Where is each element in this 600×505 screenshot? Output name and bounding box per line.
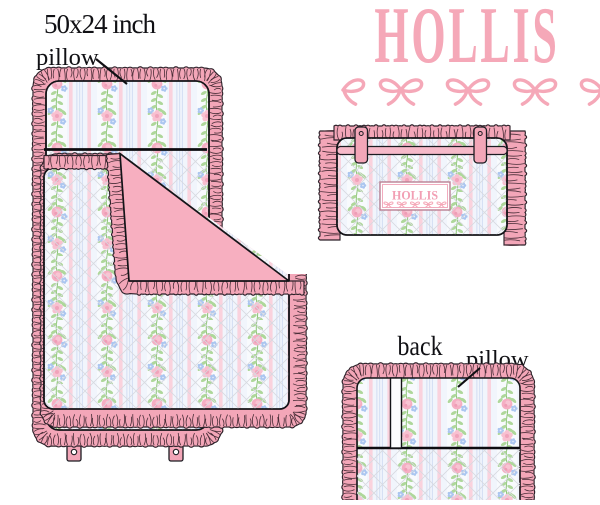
- svg-text:HOLLIS: HOLLIS: [392, 188, 438, 203]
- svg-text:HOLLIS: HOLLIS: [374, 0, 559, 79]
- svg-text:pillow: pillow: [36, 44, 99, 71]
- svg-text:back: back: [398, 331, 443, 361]
- svg-text:50x24 inch: 50x24 inch: [44, 9, 157, 39]
